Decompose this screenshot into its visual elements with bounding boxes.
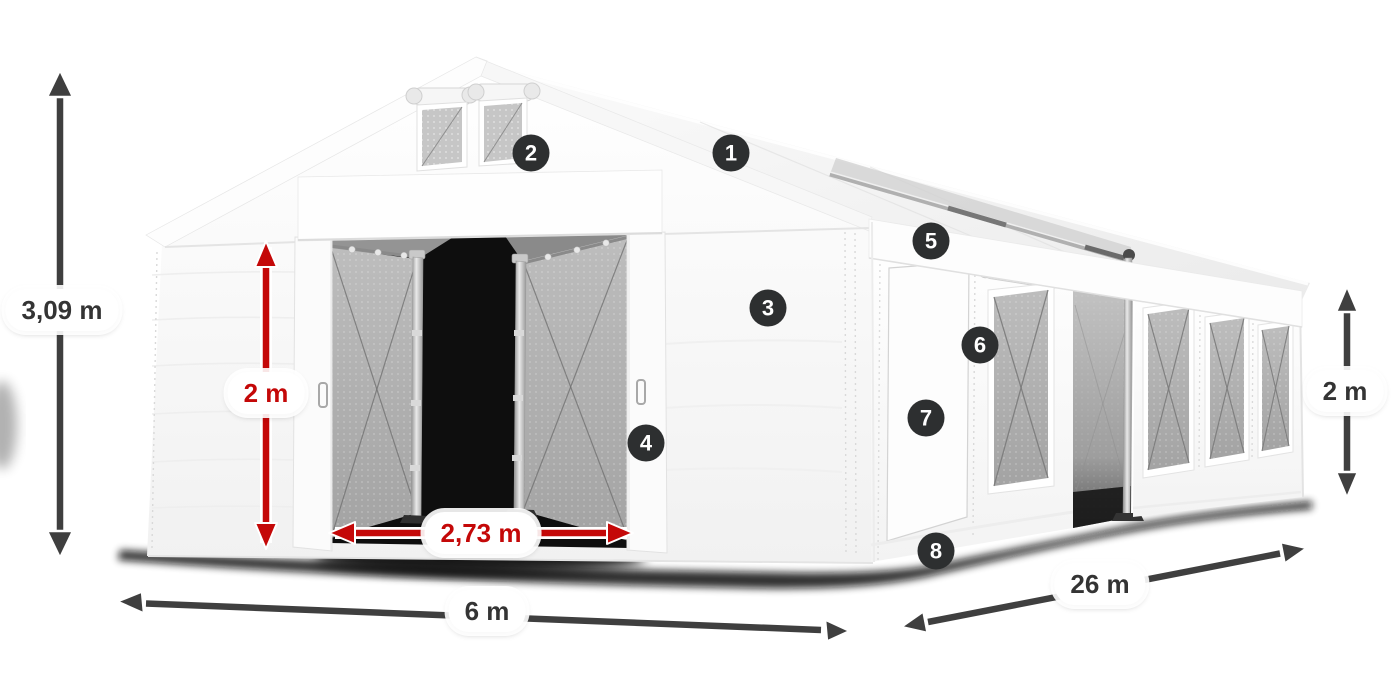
tent-dimensions-diagram: 3,09 m 2 m 2,73 m 6 m 26 m 2 m 1 2 3 4 5…	[0, 0, 1400, 700]
dimension-label-entrance-width: 2,73 m	[425, 512, 538, 554]
callout-badge-4[interactable]: 4	[628, 425, 665, 462]
mesh-door-left	[331, 246, 417, 538]
entrance-header	[298, 170, 662, 241]
callout-badge-7[interactable]: 7	[908, 400, 945, 437]
callout-badge-6[interactable]: 6	[962, 327, 999, 364]
callout-badge-1[interactable]: 1	[713, 135, 750, 172]
door-leaf-right	[627, 232, 667, 553]
callout-badge-8[interactable]: 8	[918, 533, 955, 570]
dimension-label-total-height: 3,09 m	[6, 289, 119, 331]
side-wall-front-section	[871, 246, 1073, 562]
dimension-label-front-width: 6 m	[449, 590, 526, 632]
vent-window-left	[406, 87, 478, 171]
callout-badge-2[interactable]: 2	[513, 135, 550, 172]
callout-badge-5[interactable]: 5	[913, 223, 950, 260]
tent-illustration	[0, 0, 1400, 700]
mesh-door-right	[523, 235, 629, 541]
dimension-label-side-height: 2 m	[1307, 370, 1384, 412]
dimension-label-side-length: 26 m	[1054, 563, 1145, 605]
callout-badge-3[interactable]: 3	[750, 290, 787, 327]
front-entrance	[293, 170, 667, 553]
dimension-label-entrance-height: 2 m	[228, 372, 305, 414]
side-door-panel	[887, 246, 969, 541]
